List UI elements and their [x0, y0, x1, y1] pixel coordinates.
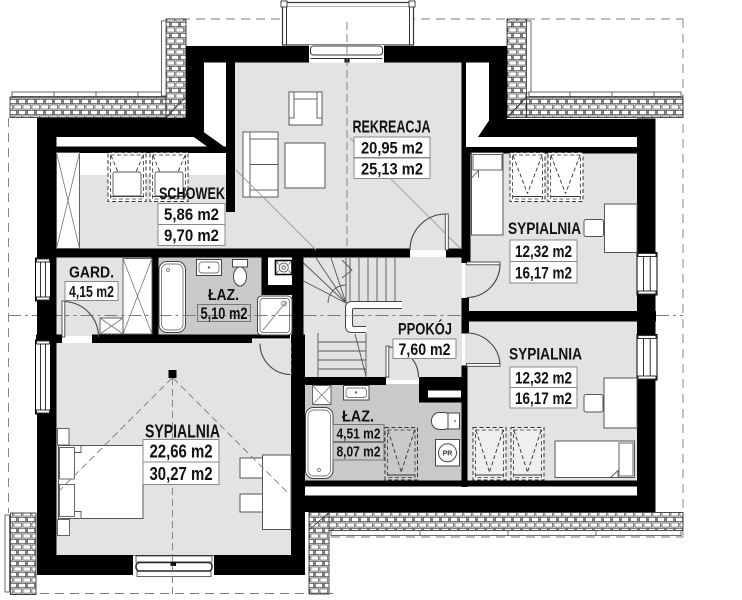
svg-text:22,66 m2: 22,66 m2 [150, 440, 213, 461]
svg-text:30,27 m2: 30,27 m2 [150, 463, 213, 484]
svg-text:5,86 m2: 5,86 m2 [164, 205, 219, 224]
svg-text:5,10 m2: 5,10 m2 [201, 305, 248, 323]
svg-text:16,17 m2: 16,17 m2 [515, 389, 572, 408]
svg-text:8,07 m2: 8,07 m2 [337, 444, 381, 461]
svg-text:SYPIALNIA: SYPIALNIA [145, 422, 220, 442]
svg-text:ŁAZ.: ŁAZ. [342, 409, 374, 426]
svg-text:ŁAZ.: ŁAZ. [208, 287, 239, 304]
svg-text:12,32 m2: 12,32 m2 [515, 368, 572, 387]
svg-text:PPOKÓJ: PPOKÓJ [398, 320, 452, 339]
svg-text:SYPIALNIA: SYPIALNIA [509, 345, 582, 364]
svg-text:4,15 m2: 4,15 m2 [69, 284, 114, 301]
svg-text:7,60 m2: 7,60 m2 [399, 340, 451, 359]
svg-text:25,13 m2: 25,13 m2 [361, 159, 423, 178]
svg-text:12,32 m2: 12,32 m2 [515, 242, 572, 261]
svg-text:16,17 m2: 16,17 m2 [515, 263, 572, 282]
svg-text:4,51 m2: 4,51 m2 [337, 425, 381, 442]
svg-text:9,70 m2: 9,70 m2 [164, 226, 219, 245]
svg-text:REKREACJA: REKREACJA [353, 117, 431, 137]
svg-text:GARD.: GARD. [69, 265, 114, 282]
svg-text:PR: PR [443, 450, 453, 457]
svg-text:20,95 m2: 20,95 m2 [361, 138, 423, 157]
svg-text:SCHOWEK: SCHOWEK [159, 184, 226, 203]
svg-text:SYPIALNIA: SYPIALNIA [508, 219, 581, 238]
